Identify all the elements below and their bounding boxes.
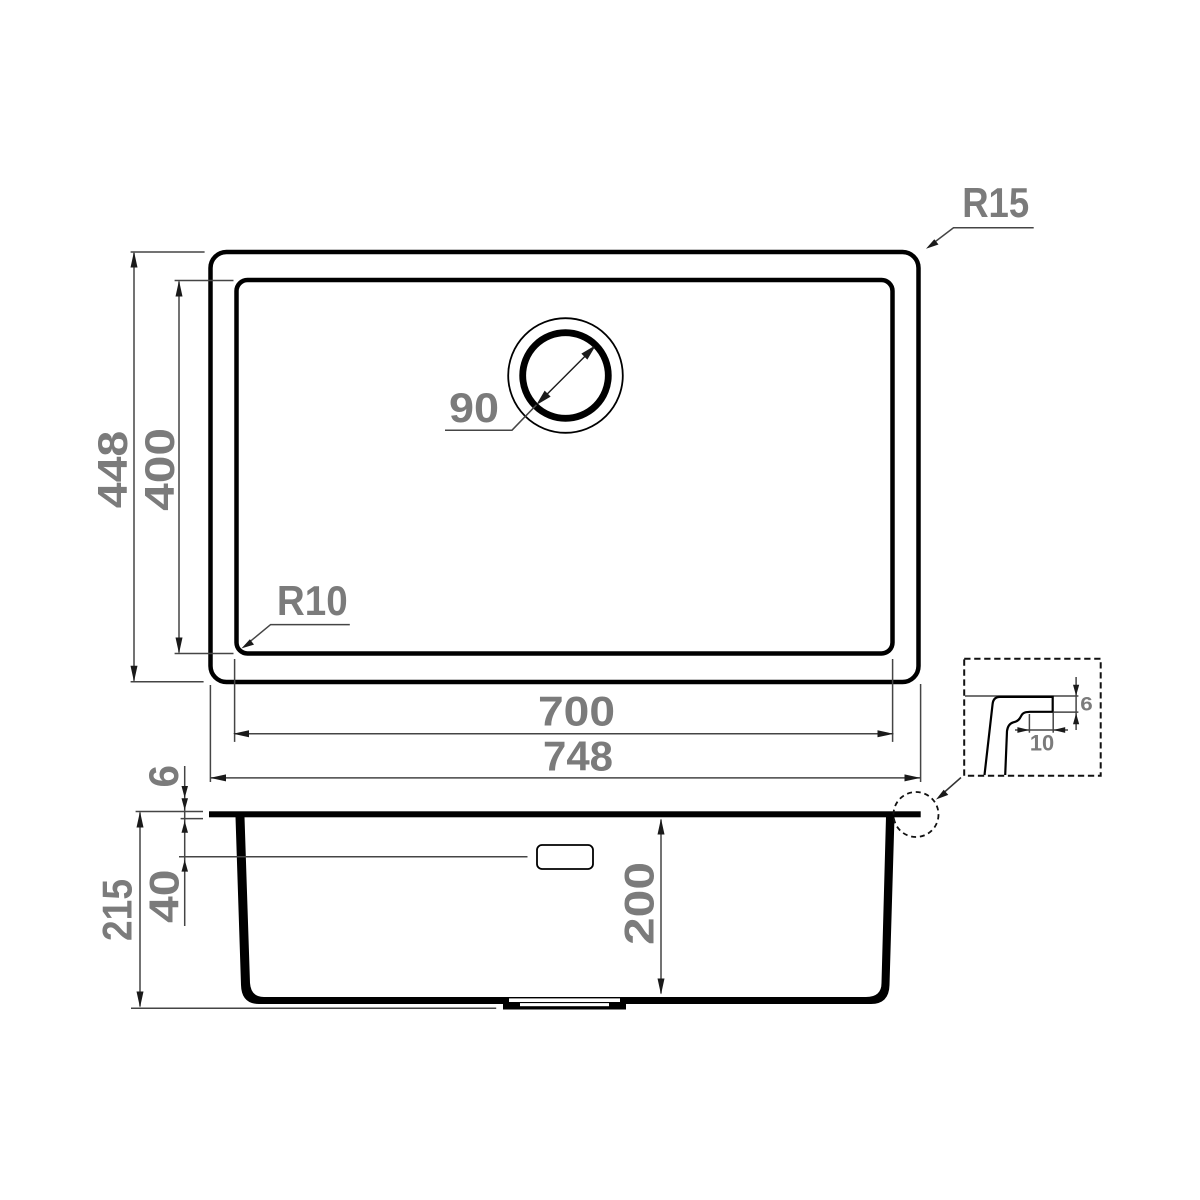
svg-text:R10: R10	[277, 577, 348, 624]
svg-text:40: 40	[141, 870, 188, 924]
svg-text:215: 215	[94, 879, 141, 941]
svg-text:700: 700	[538, 688, 615, 735]
svg-text:90: 90	[449, 384, 499, 431]
svg-text:R15: R15	[962, 179, 1029, 226]
svg-text:6: 6	[140, 765, 187, 788]
svg-text:10: 10	[1030, 731, 1054, 756]
svg-text:448: 448	[89, 431, 136, 509]
svg-text:748: 748	[543, 733, 613, 780]
svg-text:400: 400	[136, 428, 183, 511]
svg-text:6: 6	[1080, 693, 1093, 715]
svg-text:200: 200	[616, 862, 663, 945]
